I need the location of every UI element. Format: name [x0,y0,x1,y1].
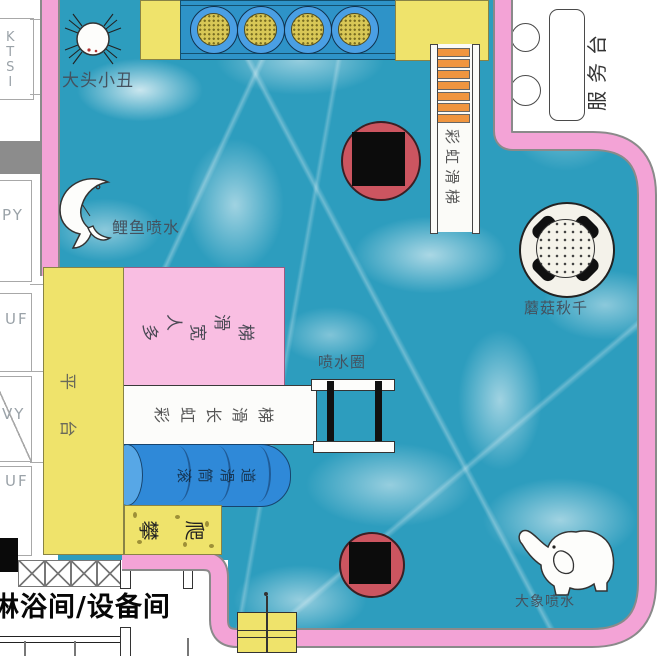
climb-hold [133,512,137,518]
slide-rail [430,44,438,234]
roller-slide-label: 滚筒滑道 [143,445,290,506]
waterpark-floor-plan: KTSI PY UF VY UF 淋浴间/设备间 服务台 [0,0,660,656]
slide-rung [437,70,470,79]
spray-ring-label: 喷水圈 [318,355,366,370]
slide-rung [437,48,470,57]
platform-block [43,267,124,555]
elephant-spray-label: 大象喷水 [515,595,575,609]
climb-hold [183,542,187,547]
climb-hold [175,515,180,519]
slide-rail [472,44,480,234]
fish-icon [46,170,126,254]
slide-rung [437,92,470,101]
long-slide-label: 彩虹长滑梯 [155,403,275,427]
climbing-block: 攀爬 [124,505,222,555]
deck-block [140,0,182,60]
climbing-label: 攀爬 [140,516,206,545]
slide-rung [437,59,470,68]
roller-slide-cylinder: 滚筒滑道 [112,444,291,507]
wide-slide-label: 多人宽滑梯 [143,315,256,340]
frame-post [327,381,334,445]
mushroom-swing-icon [519,202,615,298]
marker-dot [264,592,268,596]
tipping-bucket-top [352,132,405,186]
long-slide-block: 彩虹长滑梯 [113,385,317,445]
bubble-seat-icon [237,6,285,54]
bubble-seat-icon [331,6,379,54]
koi-spray-label: 鲤鱼喷水 [112,220,180,236]
mushroom-cap [536,219,595,278]
rainbow-slide-label: 彩虹滑梯 [445,119,463,219]
grid-line [266,613,268,652]
clown-face-icon [55,2,131,78]
frame-bar [313,441,395,453]
elephant-icon [508,518,626,604]
bubble-seat-icon [190,6,238,54]
slide-rung [437,103,470,112]
steps-block [237,612,297,653]
bubble-bench [180,0,397,60]
tipping-bucket-top [349,542,391,584]
marker-stem [266,596,268,613]
mushroom-swing-label: 蘑菇秋千 [524,301,588,316]
platform-label: 平台 [60,365,82,475]
wide-slide-block: 多人宽滑梯 [113,267,285,387]
climb-hold [209,544,214,548]
frame-bar [311,379,395,391]
clown-label: 大头小丑 [62,73,134,90]
frame-post [375,381,382,445]
climb-hold [137,540,142,544]
slide-rung [437,81,470,90]
bubble-seat-icon [284,6,332,54]
